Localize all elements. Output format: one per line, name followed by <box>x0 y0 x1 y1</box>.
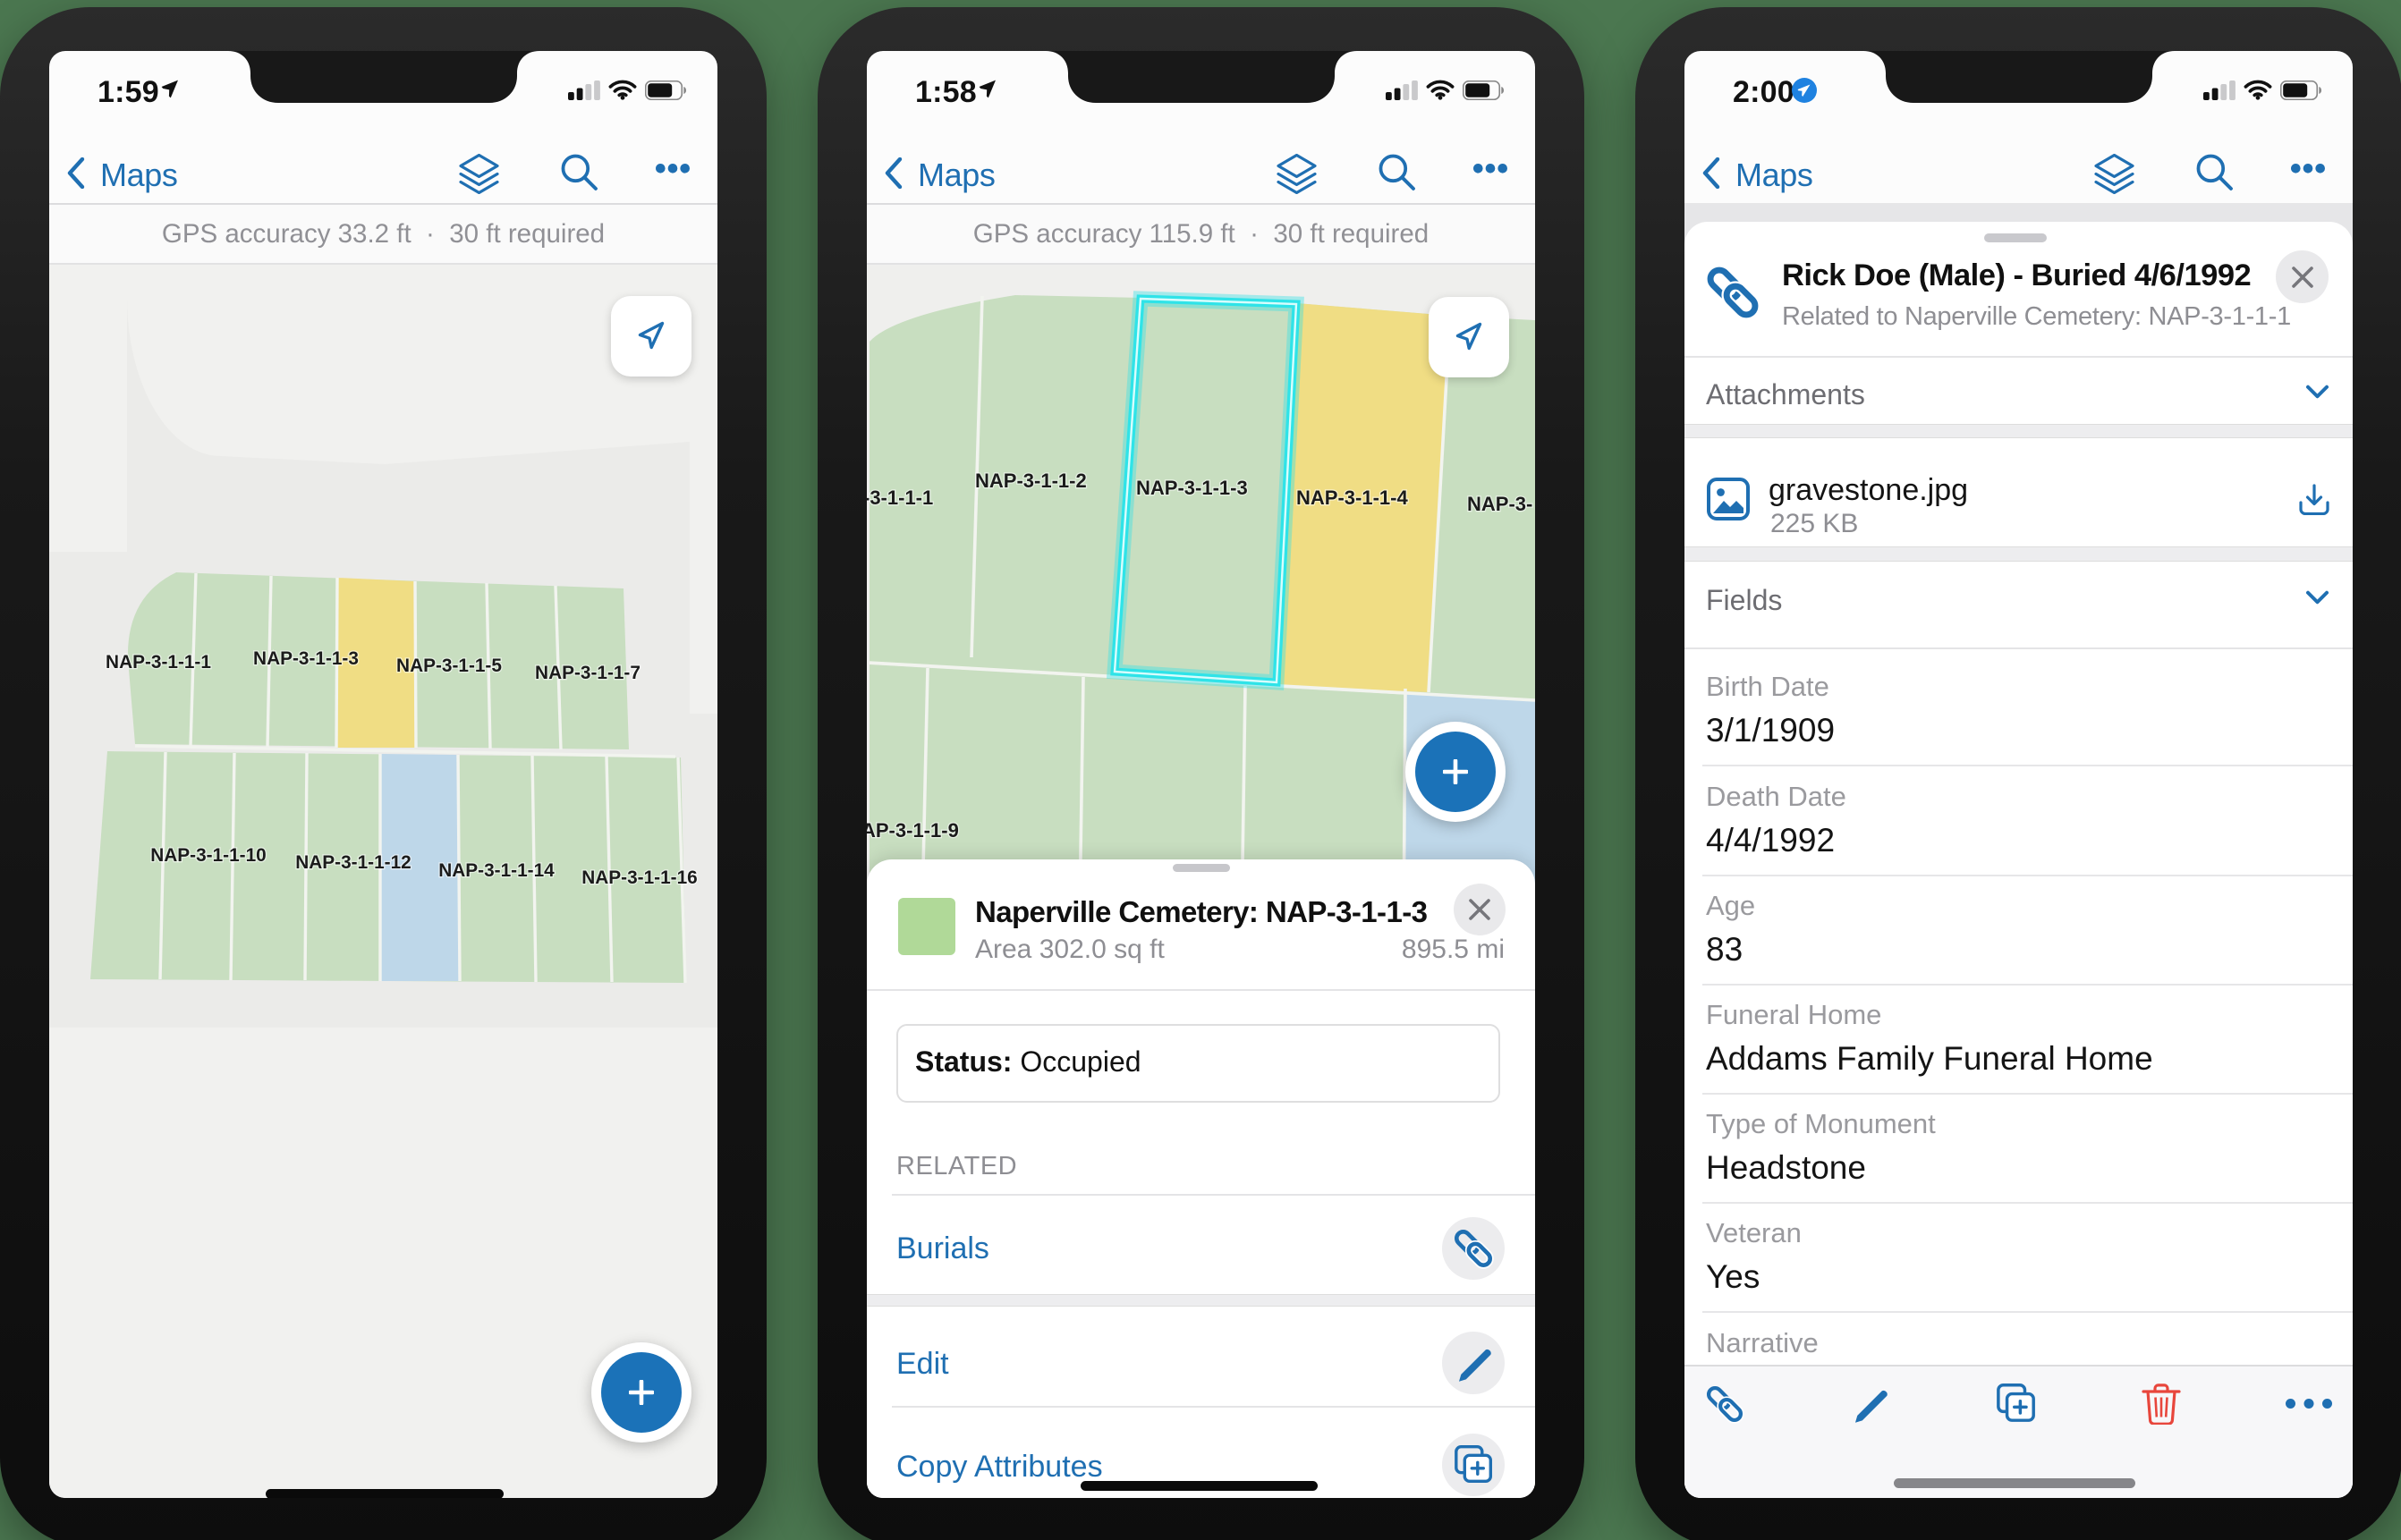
svg-text:NAP-3-1-1-10: NAP-3-1-1-10 <box>150 845 266 866</box>
svg-text:NAP-3-1-1-16: NAP-3-1-1-16 <box>581 867 697 888</box>
svg-text:NAP-3-1-1-12: NAP-3-1-1-12 <box>295 852 411 873</box>
svg-text:-3-1-1-1: -3-1-1-1 <box>867 487 933 509</box>
svg-text:NAP-3-1-1-5: NAP-3-1-1-5 <box>396 656 502 676</box>
svg-text:NAP-3-1-1-7: NAP-3-1-1-7 <box>535 663 641 683</box>
svg-text:AP-3-1-1-9: AP-3-1-1-9 <box>867 819 959 842</box>
svg-text:NAP-3-1-1-1: NAP-3-1-1-1 <box>106 652 211 673</box>
svg-text:NAP-3-1-1-3: NAP-3-1-1-3 <box>1136 477 1248 499</box>
svg-text:NAP-3-: NAP-3- <box>1467 493 1532 515</box>
svg-text:NAP-3-1-1-14: NAP-3-1-1-14 <box>438 860 555 881</box>
svg-text:NAP-3-1-1-4: NAP-3-1-1-4 <box>1296 487 1408 509</box>
svg-text:NAP-3-1-1-2: NAP-3-1-1-2 <box>975 470 1087 492</box>
svg-text:NAP-3-1-1-3: NAP-3-1-1-3 <box>253 648 359 669</box>
